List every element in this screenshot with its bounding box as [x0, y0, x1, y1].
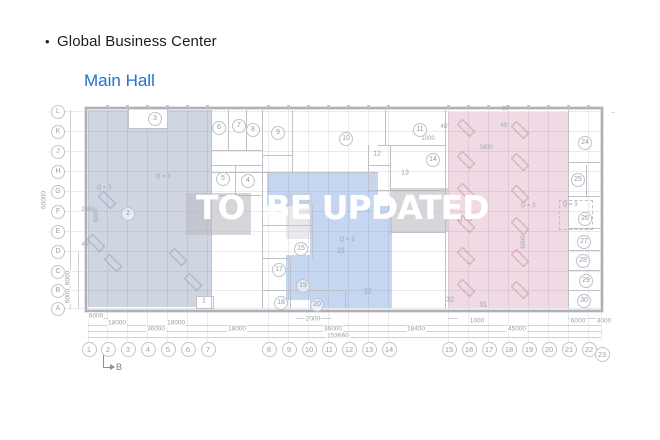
dimension-label: 153660 [326, 333, 350, 340]
wall-tick [387, 105, 390, 108]
room-label-21: 21 [337, 248, 345, 255]
dimension-label: 3000 [596, 318, 612, 325]
wall-tick [186, 105, 189, 108]
grid-row-bubble-L: L [51, 105, 65, 119]
room-marker-29: 29 [579, 274, 593, 288]
grid-row-bubble-J: J [51, 145, 65, 159]
wall-tick [587, 105, 590, 108]
watermark-text: TO BE UPDATED [196, 188, 489, 227]
dimension-label: 1000 [469, 318, 485, 325]
wall-tick [367, 105, 370, 108]
wall-tick [547, 105, 550, 108]
dimension-line [448, 318, 458, 319]
plan-annotation: 45° [81, 242, 90, 248]
grid-row-bubble-A: A [51, 302, 65, 316]
grid-row-bubble-H: H [51, 165, 65, 179]
room-marker-27: 27 [577, 235, 591, 249]
wall-tick [347, 105, 350, 108]
wall-tick [287, 105, 290, 108]
plan-annotation: 45° [440, 124, 449, 130]
room-label-32: 32 [446, 297, 454, 304]
room-marker-3: 3 [148, 112, 162, 126]
dimension-label: 6000 [65, 270, 72, 286]
grid-row-bubble-B: B [51, 284, 65, 298]
grid-col-bubble-12: 12 [342, 342, 357, 357]
grid-col-bubble-4: 4 [141, 342, 156, 357]
room-marker-15: 15 [294, 242, 308, 256]
plan-annotation: 1000 [421, 136, 434, 142]
grid-col-bubble-8: 8 [262, 342, 277, 357]
dimension-label: 36000 [146, 326, 166, 333]
room-marker-18: 18 [274, 296, 288, 310]
grid-col-bubble-11: 11 [322, 342, 337, 357]
grid-col-bubble-15: 15 [442, 342, 457, 357]
wall-tick [307, 105, 310, 108]
room-marker-20: 20 [310, 298, 324, 312]
wall-tick [106, 105, 109, 108]
grid-col-bubble-23: 23 [595, 347, 610, 362]
room-marker-28: 28 [576, 254, 590, 268]
room-marker-6: 6 [212, 121, 226, 135]
room-label-1: 1 [202, 298, 206, 305]
grid-row-bubble-G: G [51, 185, 65, 199]
grid-row-bubble-C: C [51, 265, 65, 279]
plan-annotation: 45° [500, 123, 509, 129]
room-marker-19: 19 [296, 279, 310, 293]
room-label-13: 13 [401, 170, 409, 177]
wall-tick [327, 105, 330, 108]
room-label-31: 31 [479, 302, 487, 309]
grid-row-bubble-F: F [51, 205, 65, 219]
dimension-label: 18000 [107, 320, 127, 327]
grid-col-bubble-10: 10 [302, 342, 317, 357]
dimension-label: 18000 [227, 326, 247, 333]
wall-tick [487, 105, 490, 108]
grid-col-bubble-21: 21 [562, 342, 577, 357]
dimension-label: 18400 [406, 326, 426, 333]
room-marker-9: 9 [271, 126, 285, 140]
plan-annotation: 23 [502, 106, 509, 112]
room-marker-8: 8 [246, 123, 260, 137]
dimension-line [78, 252, 79, 309]
dimension-label: 2000 [305, 316, 321, 323]
wall-tick [467, 105, 470, 108]
room-marker-17: 17 [272, 263, 286, 277]
plan-annotation: Q = 3 [97, 185, 112, 191]
plan-annotation: Q = 3 [563, 202, 578, 208]
grid-col-bubble-13: 13 [362, 342, 377, 357]
dimension-label: 6000 [570, 318, 586, 325]
grid-col-bubble-3: 3 [121, 342, 136, 357]
wall-tick [267, 105, 270, 108]
wall-tick [146, 105, 149, 108]
plan-annotation: – [611, 110, 614, 116]
room-marker-26: 26 [578, 212, 592, 226]
plan-annotation: Q = 3 [156, 174, 171, 180]
wall-tick [567, 105, 570, 108]
room-marker-24: 24 [578, 136, 592, 150]
plan-annotation: 2690 [81, 207, 94, 213]
wall-tick [206, 105, 209, 108]
room-marker-4: 4 [241, 174, 255, 188]
grid-col-bubble-20: 20 [542, 342, 557, 357]
plan-annotation: Q = 3 [340, 237, 355, 243]
page: • Global Business Center Main Hall 23456… [0, 0, 660, 440]
plan-annotation: 6000 [521, 235, 527, 248]
dimension-label: 60000 [41, 190, 48, 210]
room-marker-7: 7 [232, 119, 246, 133]
room-label-12: 12 [373, 151, 381, 158]
dimension-label: 6000 [65, 288, 72, 304]
plan-annotation: Q = 3 [521, 203, 536, 209]
grid-col-bubble-17: 17 [482, 342, 497, 357]
room-marker-11: 11 [413, 123, 427, 137]
grid-row-bubble-D: D [51, 245, 65, 259]
plan-annotation: 5000 [94, 209, 100, 222]
room-marker-10: 10 [339, 132, 353, 146]
dimension-label: 6000 [88, 313, 104, 320]
wall-tick [166, 105, 169, 108]
grid-col-bubble-16: 16 [462, 342, 477, 357]
grid-col-bubble-19: 19 [522, 342, 537, 357]
grid-col-bubble-1: 1 [82, 342, 97, 357]
grid-col-bubble-14: 14 [382, 342, 397, 357]
plan-annotation: 1800 [479, 145, 492, 151]
room-marker-2: 2 [121, 207, 135, 221]
grid-col-bubble-5: 5 [161, 342, 176, 357]
section-marker-arrow-icon [110, 364, 115, 370]
dimension-label: 36000 [323, 326, 343, 333]
grid-col-bubble-6: 6 [181, 342, 196, 357]
room-label-22: 22 [364, 289, 372, 296]
dimension-label: 45000 [507, 326, 527, 333]
room-marker-5: 5 [216, 172, 230, 186]
wall-tick [527, 105, 530, 108]
grid-col-bubble-2: 2 [101, 342, 116, 357]
room-marker-14: 14 [426, 153, 440, 167]
room-marker-30: 30 [577, 294, 591, 308]
wall-tick [447, 105, 450, 108]
room-marker-25: 25 [571, 173, 585, 187]
grid-col-bubble-18: 18 [502, 342, 517, 357]
dimension-label: 18000 [166, 320, 186, 327]
section-marker-label: B [116, 362, 122, 372]
grid-col-bubble-9: 9 [282, 342, 297, 357]
wall-tick [126, 105, 129, 108]
grid-row-bubble-E: E [51, 225, 65, 239]
grid-row-bubble-K: K [51, 125, 65, 139]
grid-col-bubble-7: 7 [201, 342, 216, 357]
